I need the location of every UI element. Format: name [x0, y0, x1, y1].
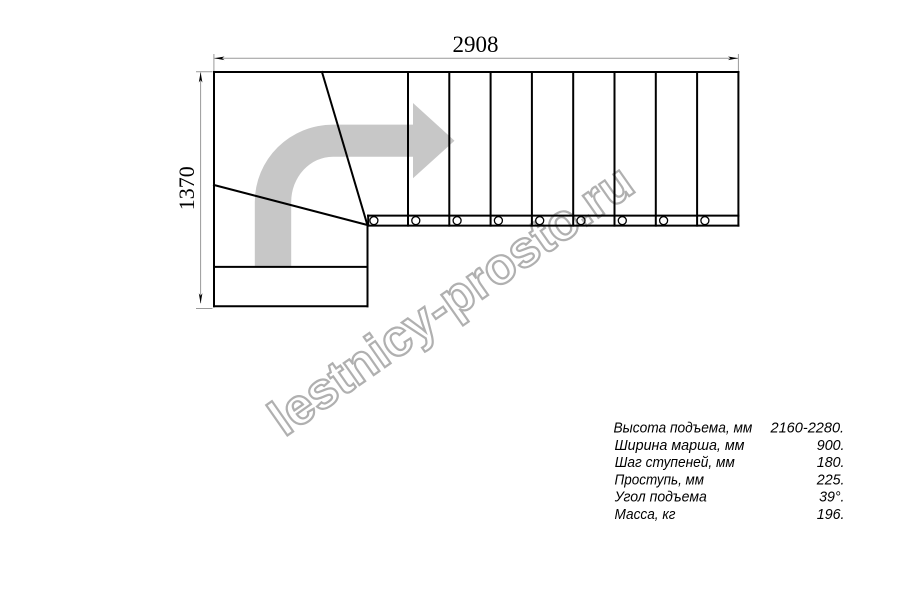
svg-text:2160-2280.: 2160-2280. [770, 420, 845, 437]
svg-text:196.: 196. [817, 506, 845, 523]
svg-text:Ширина марша, мм: Ширина марша, мм [615, 437, 745, 454]
svg-text:225.: 225. [816, 471, 845, 488]
svg-text:Угол подъема: Угол подъема [614, 489, 707, 506]
svg-text:Проступь, мм: Проступь, мм [615, 471, 705, 488]
svg-text:900.: 900. [817, 437, 845, 454]
svg-text:Высота подъема, мм: Высота подъема, мм [614, 420, 753, 437]
svg-text:Шаг ступеней, мм: Шаг ступеней, мм [615, 454, 735, 471]
svg-text:39°.: 39°. [819, 489, 844, 506]
svg-text:2908: 2908 [453, 32, 499, 57]
svg-text:180.: 180. [817, 454, 845, 471]
svg-text:Масса, кг: Масса, кг [615, 506, 677, 523]
svg-text:1370: 1370 [174, 166, 199, 210]
